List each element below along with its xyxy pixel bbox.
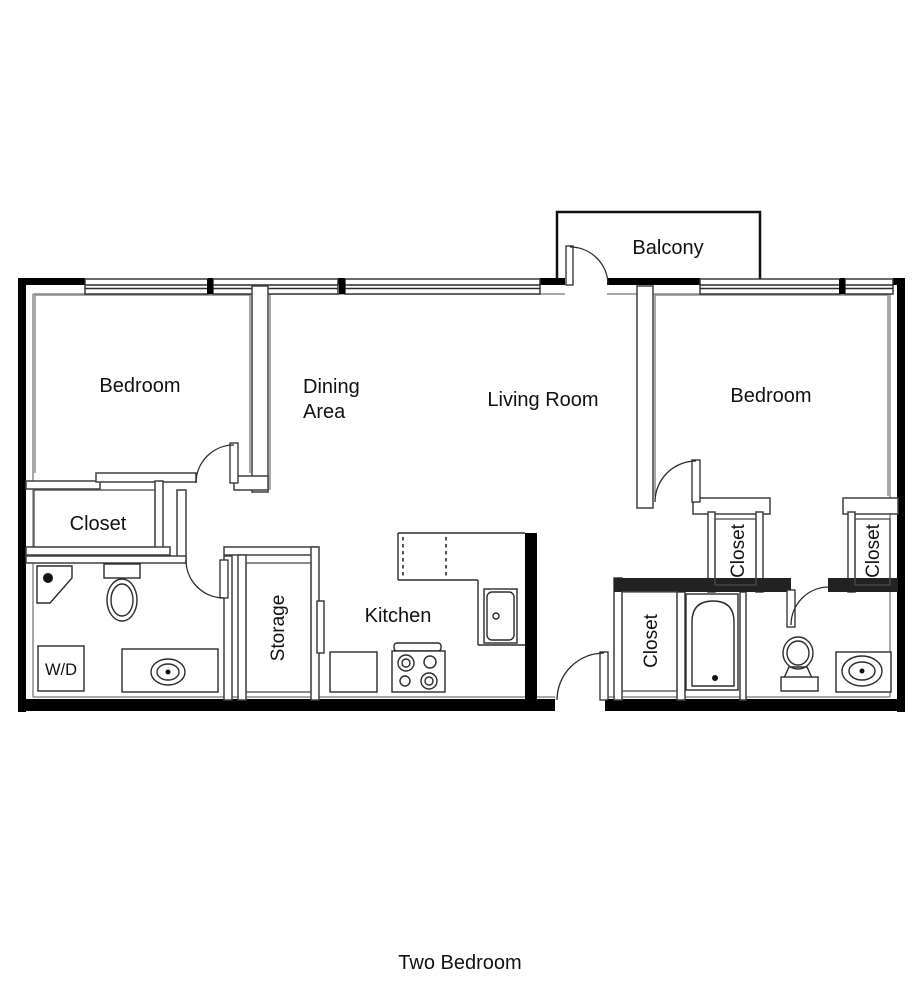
wall-bath2-top-a	[614, 578, 791, 592]
toilet-base	[781, 677, 818, 691]
label-kitchen: Kitchen	[365, 605, 432, 627]
toilet-seat-inner	[787, 641, 809, 665]
stove	[392, 643, 445, 692]
wall-bedroom1-bottom-b	[96, 473, 196, 482]
bathroom1-door	[186, 560, 228, 598]
bedroom1-door-arc	[196, 445, 234, 483]
label-closet-bedroom-a: Closet	[728, 523, 749, 578]
window	[85, 279, 208, 294]
toilet-bowl-inner	[111, 584, 133, 616]
wall-living-bedroom2	[637, 286, 653, 508]
vanity-sink	[836, 652, 891, 692]
upper-cabinets-dashed	[403, 537, 446, 577]
wall-bedroom1-doorjamb	[234, 476, 268, 490]
wall-storage-left	[238, 555, 246, 700]
balcony-door-leaf	[566, 246, 573, 285]
bedroom2-door-arc	[655, 461, 696, 502]
entry-door	[557, 652, 608, 700]
label-storage: Storage	[268, 595, 289, 662]
wall-tub-left	[677, 592, 685, 700]
bathroom2-door-arc	[791, 587, 829, 625]
bathroom1-door-leaf	[220, 560, 228, 598]
balcony-door	[566, 246, 608, 285]
floor-plan-canvas: Balcony Bedroom Dining Area Living Room …	[0, 0, 923, 1000]
sink-drain	[860, 669, 865, 674]
toilet	[781, 637, 818, 691]
wall-bath1-top	[26, 556, 186, 563]
entry-door-leaf	[600, 652, 608, 700]
corner-shelf	[37, 566, 72, 603]
refrigerator	[484, 589, 517, 643]
wall-storage-top	[224, 547, 317, 555]
wall-kitchen-right	[525, 533, 537, 705]
outer-walls	[18, 278, 905, 712]
label-living-room: Living Room	[487, 389, 598, 411]
wall-bedroom1-bottom-a	[26, 481, 100, 489]
wall-closet1-bottom	[26, 547, 170, 555]
bedroom1-door	[196, 443, 238, 483]
window	[700, 279, 840, 294]
window-mullion	[339, 279, 345, 294]
plan-title: Two Bedroom	[398, 952, 521, 974]
balcony-door-arc	[570, 247, 608, 285]
corner-shelf-dot	[43, 573, 53, 583]
bathroom2-door	[787, 587, 829, 627]
wall-tub-right	[740, 592, 746, 700]
stove-back-panel	[394, 643, 441, 651]
bathroom1-door-arc	[186, 560, 224, 598]
dishwasher	[330, 652, 377, 692]
label-washer-dryer: W/D	[45, 661, 77, 679]
bedroom2-door-leaf	[692, 460, 700, 502]
window-mullion	[839, 279, 845, 294]
window-mullion	[207, 279, 213, 294]
label-dining-line1: Dining	[303, 376, 360, 398]
wall-closet1-right	[155, 481, 163, 555]
wall-storage-notch	[317, 601, 324, 653]
tub-drain	[712, 675, 718, 681]
interior-walls	[26, 286, 898, 705]
floor-plan-page: Balcony Bedroom Dining Area Living Room …	[0, 0, 923, 1000]
wall-bedroom1-right	[252, 286, 268, 492]
toilet	[104, 564, 140, 621]
label-balcony: Balcony	[632, 237, 703, 259]
bedroom1-door-leaf	[230, 443, 238, 483]
wall-entrycloset-left	[614, 578, 622, 700]
sink-drain	[166, 670, 171, 675]
label-closet-left: Closet	[70, 513, 127, 535]
label-closet-bedroom-b: Closet	[863, 523, 884, 578]
bedroom2-door	[655, 460, 700, 502]
label-bedroom-right: Bedroom	[730, 385, 811, 407]
label-bedroom-left: Bedroom	[99, 375, 180, 397]
window	[213, 279, 338, 294]
wall-hall-left	[177, 490, 186, 560]
window	[345, 279, 540, 294]
windows	[85, 279, 893, 294]
entry-door-arc	[557, 653, 604, 700]
bathtub	[686, 594, 738, 690]
toilet-tank	[104, 564, 140, 578]
vanity-sink	[122, 649, 218, 692]
label-dining-line2: Area	[303, 401, 346, 423]
label-closet-entry: Closet	[641, 613, 662, 668]
window	[845, 279, 893, 294]
room-labels: Balcony Bedroom Dining Area Living Room …	[45, 237, 884, 679]
